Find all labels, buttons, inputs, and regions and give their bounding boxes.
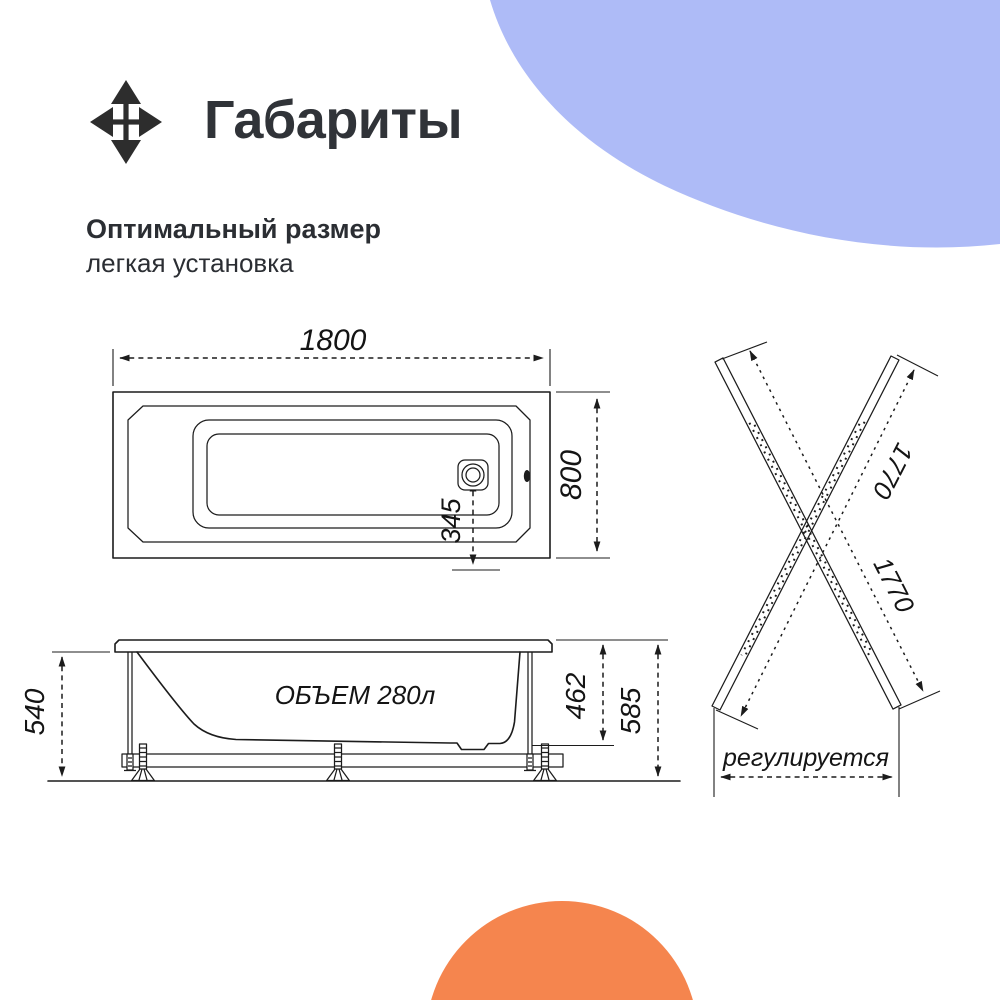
overflow-hole xyxy=(524,470,530,482)
top-view-drawing: 1800 800 345 xyxy=(113,324,610,570)
dim-length-label: 1800 xyxy=(300,324,367,357)
drain-symbol xyxy=(458,460,488,490)
adjustable-label: регулируется xyxy=(722,744,889,772)
dim-width-label: 800 xyxy=(555,450,588,500)
dim-rim-height-label: 540 xyxy=(19,688,50,735)
dim-drain-offset-label: 345 xyxy=(436,497,466,543)
rail-length-b-label: 1770 xyxy=(868,552,921,618)
technical-drawing: 1800 800 345 xyxy=(0,0,1000,1000)
volume-label: ОБЪЕМ 280л xyxy=(275,680,436,710)
side-view-drawing: 540 462 585 ОБЪЕМ 280л xyxy=(19,640,680,781)
dim-total-height-label: 585 xyxy=(615,687,646,734)
dim-inner-depth-label: 462 xyxy=(560,672,591,719)
cross-frame-drawing: 1770 1770 регулируется xyxy=(712,342,940,797)
